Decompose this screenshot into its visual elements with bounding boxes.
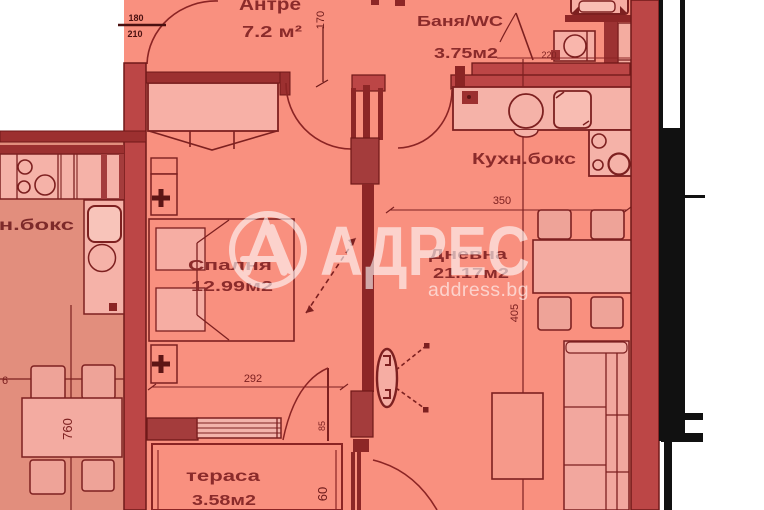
svg-text:210: 210: [127, 29, 142, 39]
svg-text:292: 292: [244, 373, 262, 385]
svg-text:405: 405: [509, 304, 521, 322]
svg-text:кухн.бокс: кухн.бокс: [0, 217, 75, 234]
svg-text:address.bg: address.bg: [428, 279, 529, 301]
svg-text:760: 760: [60, 418, 75, 440]
svg-text:Кухн.бокс: Кухн.бокс: [472, 151, 577, 168]
svg-text:180: 180: [128, 13, 143, 23]
svg-text:350: 350: [493, 195, 511, 207]
svg-text:Баня/WC: Баня/WC: [417, 13, 503, 30]
svg-text:60: 60: [315, 487, 330, 501]
svg-text:тераса: тераса: [186, 468, 261, 485]
svg-text:7.2 м²: 7.2 м²: [242, 24, 302, 41]
svg-text:3.58м2: 3.58м2: [192, 492, 256, 509]
svg-text:6: 6: [2, 375, 8, 387]
svg-text:3.75м2: 3.75м2: [434, 45, 498, 62]
svg-text:Антре: Антре: [239, 0, 301, 14]
svg-text:85: 85: [317, 421, 327, 431]
svg-text:170: 170: [315, 11, 327, 29]
